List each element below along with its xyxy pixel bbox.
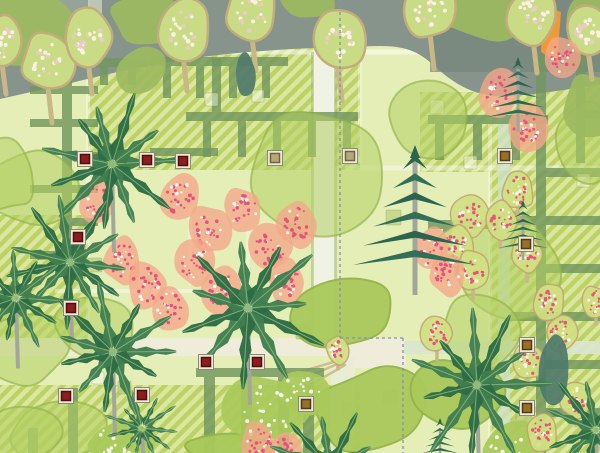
poi-marker-red[interactable] (59, 389, 74, 404)
poi-marker-brown[interactable] (520, 401, 535, 416)
poi-marker-brown[interactable] (498, 149, 513, 164)
canopy-tree (251, 112, 382, 237)
poi-marker-olive[interactable] (268, 151, 283, 166)
poi-marker-olive[interactable] (343, 149, 358, 164)
poi-marker-red[interactable] (78, 152, 93, 167)
poi-marker-red[interactable] (140, 153, 155, 168)
poi-marker-red[interactable] (71, 230, 86, 245)
park-map (0, 0, 600, 453)
poi-marker-red[interactable] (199, 355, 214, 370)
poi-marker-brown[interactable] (519, 237, 534, 252)
poi-marker-red[interactable] (64, 301, 79, 316)
park-map-canvas (0, 0, 600, 453)
poi-marker-red[interactable] (135, 388, 150, 403)
poi-marker-brown[interactable] (520, 338, 535, 353)
poi-marker-red[interactable] (176, 154, 191, 169)
poi-marker-red[interactable] (250, 355, 265, 370)
poi-marker-brown[interactable] (299, 397, 314, 412)
